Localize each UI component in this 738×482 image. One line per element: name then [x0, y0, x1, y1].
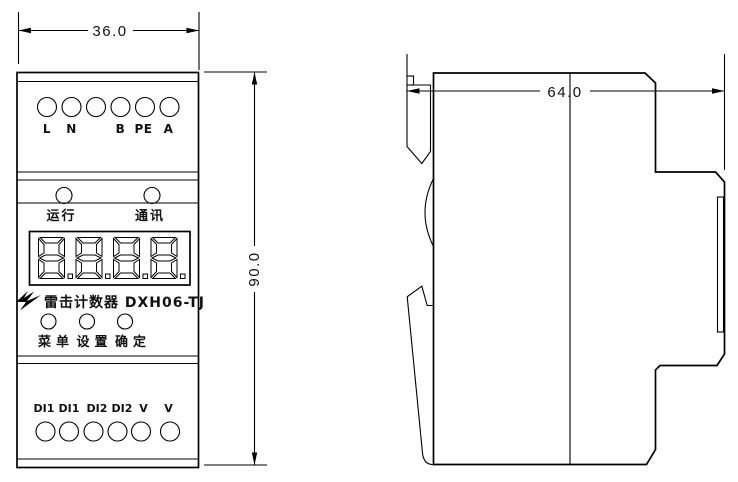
- terminal-label: DI2: [112, 402, 133, 415]
- terminal-label: DI1: [59, 402, 80, 415]
- terminal-circle: [38, 98, 57, 117]
- dim-depth-label: 64.0: [547, 84, 582, 101]
- set-button-circle: [80, 314, 95, 329]
- side-view-outline: [434, 73, 725, 465]
- confirm-button-circle: [118, 314, 133, 329]
- front-view: L N B PE A 运行 通讯 雷击计数器 DXH06-TJ 菜单 设置 确定: [16, 73, 205, 468]
- dim-arrow-right: [187, 28, 200, 33]
- run-led-label: 运行: [46, 208, 76, 224]
- terminal-circle: [108, 422, 127, 441]
- terminal-label: V: [139, 402, 148, 415]
- terminal-circle: [62, 98, 81, 117]
- confirm-button-label: 确定: [115, 334, 151, 350]
- terminal-circle: [160, 98, 179, 117]
- din-rail-clip: [407, 76, 434, 465]
- terminal-label: B: [116, 122, 126, 136]
- product-title: 雷击计数器 DXH06-TJ: [44, 294, 205, 311]
- terminal-circle: [84, 422, 103, 441]
- side-view: [407, 73, 725, 465]
- terminal-circle: [87, 98, 106, 117]
- brand-logo-icon: [16, 291, 41, 311]
- menu-button-circle: [41, 314, 56, 329]
- comm-led-circle: [144, 188, 160, 204]
- terminal-label: PE: [135, 122, 153, 136]
- menu-button-label: 菜单: [37, 334, 74, 350]
- dim-arrow-left: [407, 88, 420, 93]
- terminal-circle: [132, 422, 151, 441]
- top-terminal-circles: [38, 98, 180, 117]
- terminal-circle: [161, 422, 180, 441]
- side-view-edge-recess: [718, 197, 724, 332]
- dimension-width-36: 36.0: [19, 12, 200, 70]
- set-button-label: 设置: [76, 335, 112, 350]
- dim-arrow-down: [252, 453, 257, 466]
- seven-segment-display: [30, 232, 191, 286]
- terminal-circle: [111, 98, 130, 117]
- technical-drawing: L N B PE A 运行 通讯 雷击计数器 DXH06-TJ 菜单 设置 确定: [0, 0, 738, 482]
- terminal-label: DI2: [87, 402, 108, 415]
- terminal-label: DI1: [34, 402, 55, 415]
- dimension-height-90: 90.0: [204, 72, 267, 465]
- terminal-circle: [60, 422, 79, 441]
- terminal-label: L: [43, 122, 51, 136]
- run-led-circle: [56, 188, 72, 204]
- terminal-circle: [136, 98, 155, 117]
- dimension-depth-64: 64.0: [407, 54, 725, 170]
- bottom-terminal-circles: [36, 422, 180, 441]
- dim-height-label: 90.0: [246, 251, 263, 286]
- bottom-terminal-labels: DI1 DI1 DI2 DI2 V V: [34, 402, 174, 415]
- terminal-label: N: [66, 122, 77, 136]
- terminal-label: V: [164, 402, 173, 415]
- top-terminal-labels: L N B PE A: [43, 122, 174, 136]
- terminal-circle: [36, 422, 55, 441]
- dim-arrow-right: [712, 88, 725, 93]
- dim-arrow-left: [19, 28, 32, 33]
- dim-arrow-up: [252, 72, 257, 85]
- dim-width-label: 36.0: [92, 23, 127, 40]
- terminal-label: A: [164, 122, 174, 136]
- comm-led-label: 通讯: [135, 208, 165, 224]
